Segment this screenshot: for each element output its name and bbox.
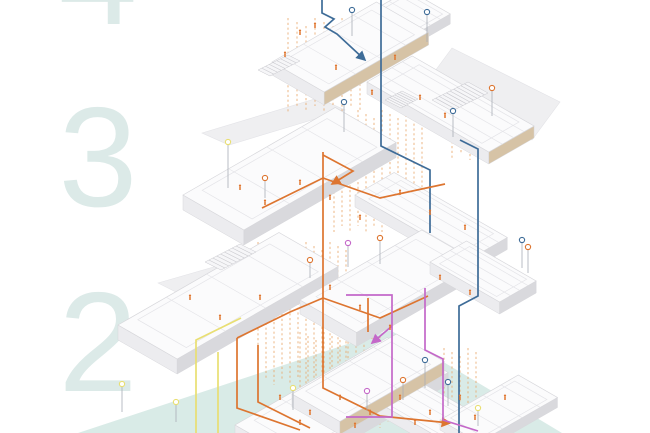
person-head xyxy=(329,195,331,197)
pin-head xyxy=(422,357,427,362)
pin-head xyxy=(262,175,267,180)
person-head xyxy=(189,295,191,297)
pin-head xyxy=(345,240,350,245)
person-head xyxy=(369,410,371,412)
person-head xyxy=(299,30,301,32)
pin-head xyxy=(489,85,494,90)
person-head xyxy=(259,295,261,297)
person-head xyxy=(329,285,331,287)
person-figure xyxy=(329,195,331,201)
person-head xyxy=(309,410,311,412)
person-head xyxy=(414,420,416,422)
pin-head xyxy=(400,377,405,382)
person-head xyxy=(394,55,396,57)
pin-head xyxy=(225,139,230,144)
person-head xyxy=(264,200,266,202)
pin-head xyxy=(364,388,369,393)
pin-head xyxy=(307,257,312,262)
person-head xyxy=(444,113,446,115)
person-head xyxy=(399,190,401,192)
pin-head xyxy=(445,379,450,384)
person-head xyxy=(504,395,506,397)
pin-head xyxy=(519,237,524,242)
person-head xyxy=(371,90,373,92)
floor-slab xyxy=(183,108,396,246)
pin-head xyxy=(173,399,178,404)
person-head xyxy=(359,305,361,307)
pin-head xyxy=(525,244,530,249)
person-head xyxy=(279,395,281,397)
pin-head xyxy=(349,7,354,12)
person-head xyxy=(359,215,361,217)
pin-marker xyxy=(345,240,350,267)
pin-marker xyxy=(119,381,124,412)
pin-head xyxy=(119,381,124,386)
person-head xyxy=(469,290,471,292)
person-figure xyxy=(299,30,301,36)
person-head xyxy=(459,395,461,397)
pin-head xyxy=(475,405,480,410)
person-head xyxy=(299,180,301,182)
person-head xyxy=(314,23,316,25)
person-head xyxy=(474,415,476,417)
person-figure xyxy=(359,215,361,221)
pin-head xyxy=(377,235,382,240)
person-head xyxy=(429,410,431,412)
person-head xyxy=(339,395,341,397)
pin-head xyxy=(290,385,295,390)
person-head xyxy=(389,325,391,327)
person-head xyxy=(219,315,221,317)
person-head xyxy=(419,95,421,97)
person-figure xyxy=(314,23,316,29)
pin-head xyxy=(450,108,455,113)
person-head xyxy=(284,52,286,54)
person-head xyxy=(335,65,337,67)
person-head xyxy=(399,395,401,397)
person-head xyxy=(439,275,441,277)
person-head xyxy=(239,185,241,187)
pin-head xyxy=(424,9,429,14)
person-head xyxy=(354,423,356,425)
pin-head xyxy=(341,99,346,104)
architectural-exploded-axonometric: 4 3 2 xyxy=(0,0,650,433)
person-head xyxy=(299,420,301,422)
person-head xyxy=(429,210,431,212)
pin-marker xyxy=(519,237,524,268)
axonometric-drawing xyxy=(0,0,650,433)
person-head xyxy=(464,225,466,227)
pin-marker xyxy=(525,244,530,273)
